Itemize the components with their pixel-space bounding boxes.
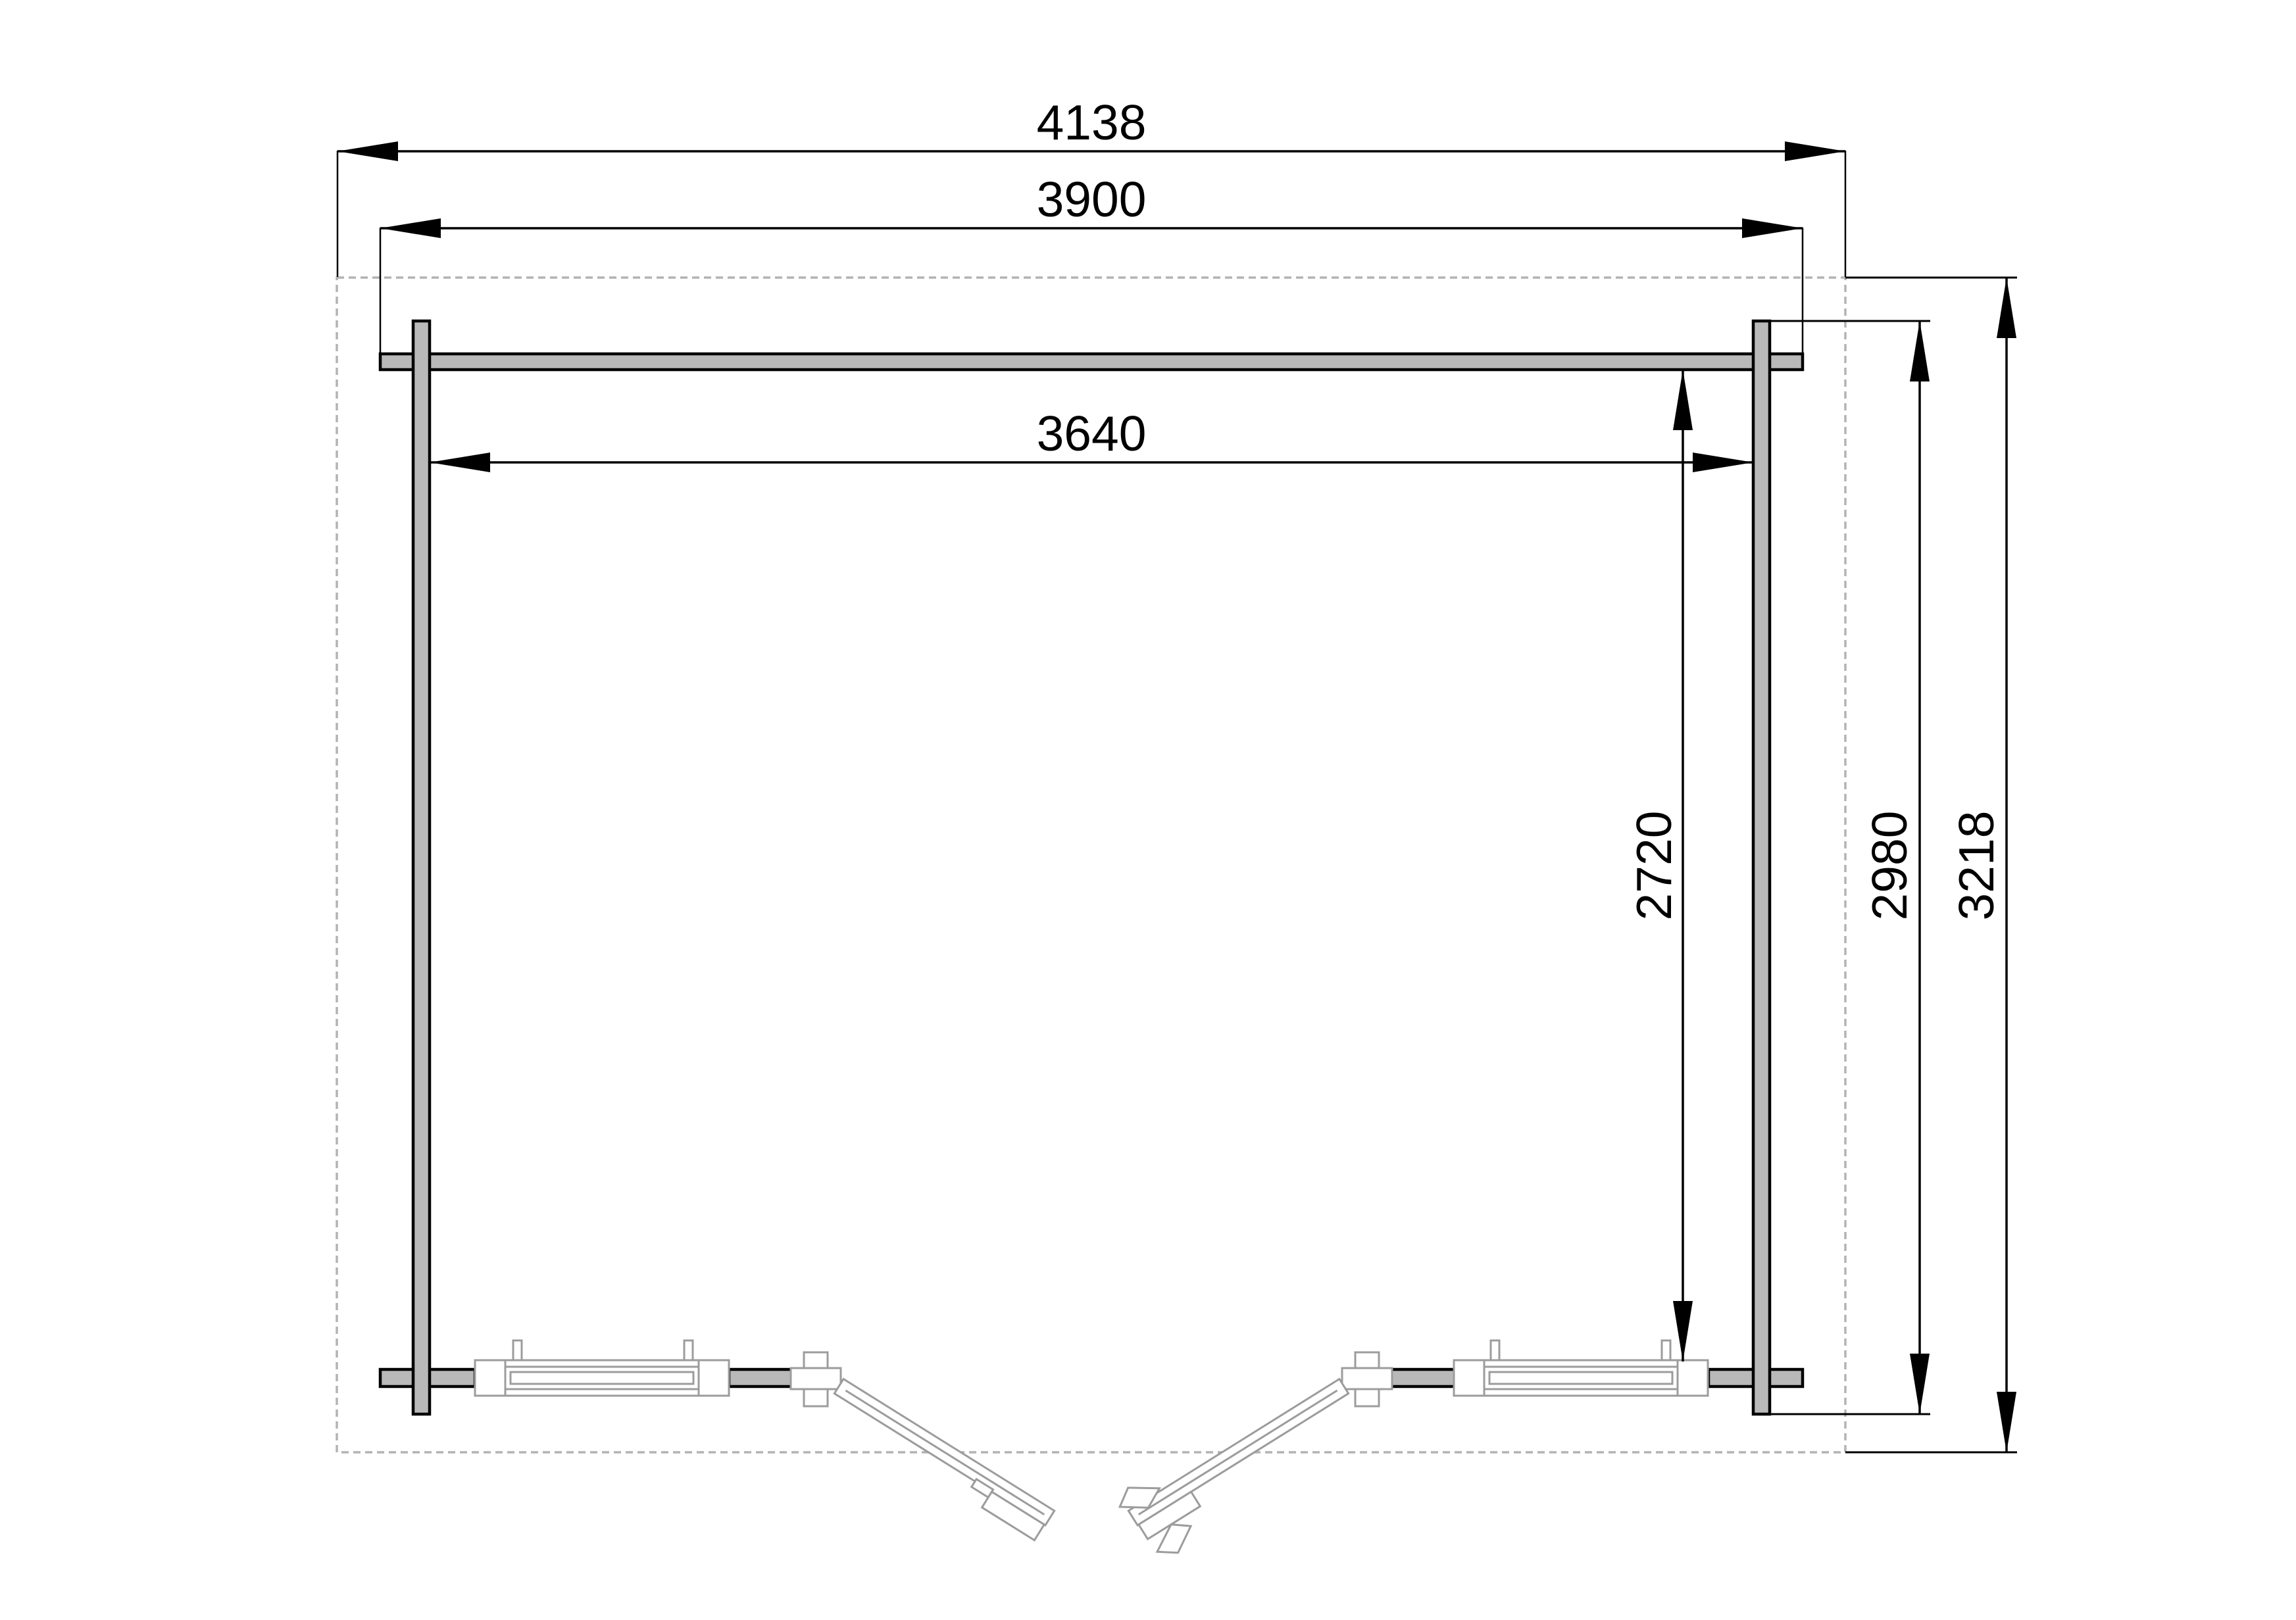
dim-label-roof-width: 4138 [1037,95,1147,150]
arrow-left-icon [380,218,441,238]
window-right-hinge-tab [1662,1340,1670,1360]
window-left-hinge-tab [513,1340,522,1360]
dim-interior-width: 3640 [430,406,1753,472]
floor-plan-drawing: 4138 3900 3640 2720 [0,0,2296,1620]
dim-label-log-length: 3900 [1037,172,1147,227]
window-left-end-block [475,1360,505,1396]
arrow-right-icon [1785,141,1845,161]
back-wall-log [380,354,1803,370]
door-frame-right [1342,1352,1392,1406]
right-wall-log [1753,321,1770,1414]
arrow-down-icon [1997,1392,2016,1452]
window-left-hinge-tab [684,1340,693,1360]
door-frame-left-horizontal [791,1368,841,1389]
arrow-up-icon [1673,370,1693,430]
dim-interior-depth: 2720 [1626,370,1693,1362]
arrow-left-icon [430,453,490,472]
door-leaf-left-open [825,1379,1055,1541]
window-right-hinge-tab [1491,1340,1499,1360]
window-right-end-block [1678,1360,1708,1396]
window-right-end-block [1454,1360,1484,1396]
door-frame-left [791,1352,841,1406]
arrow-right-icon [1693,453,1753,472]
arrow-up-icon [1997,278,2016,338]
door-leaf-right-open [1114,1362,1372,1566]
dim-label-interior-width: 3640 [1037,406,1147,461]
dim-label-roof-depth: 3218 [1949,811,2004,921]
left-wall-log [413,321,430,1414]
window-right [1454,1340,1708,1396]
dim-label-interior-depth: 2720 [1626,811,1682,921]
arrow-down-icon [1673,1301,1693,1362]
arrow-left-icon [337,141,398,161]
floor-plan-page: 4138 3900 3640 2720 [0,0,2296,1620]
dim-log-length: 3900 [380,172,1803,353]
wall-logs [380,321,1803,1414]
window-left-end-block [699,1360,729,1396]
arrow-up-icon [1910,321,1930,381]
arrow-down-icon [1910,1354,1930,1414]
window-left-sash [505,1367,699,1389]
door-frame-right-horizontal [1342,1368,1392,1389]
dim-label-wall-depth: 2980 [1862,811,1917,921]
window-left [475,1340,729,1396]
window-right-sash [1484,1367,1678,1389]
arrow-right-icon [1742,218,1803,238]
dim-wall-depth: 2980 [1770,321,1930,1414]
